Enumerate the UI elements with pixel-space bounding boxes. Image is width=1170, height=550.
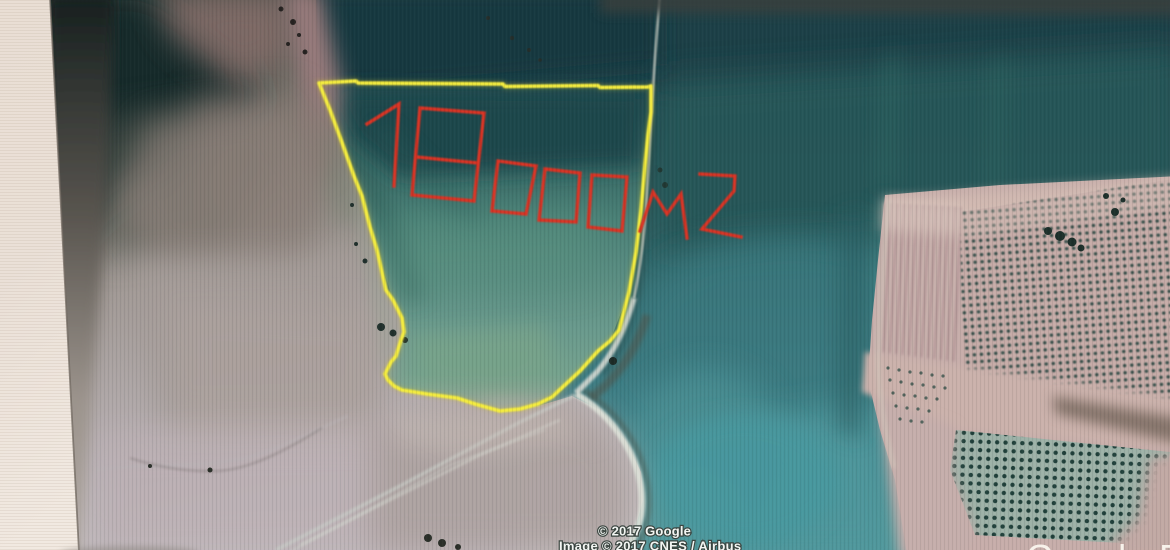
svg-text:Image © 2017 CNES / Airbus: Image © 2017 CNES / Airbus [559, 539, 741, 550]
svg-text:Google E: Google E [1026, 537, 1170, 550]
svg-text:© 2017 Google: © 2017 Google [598, 524, 691, 539]
